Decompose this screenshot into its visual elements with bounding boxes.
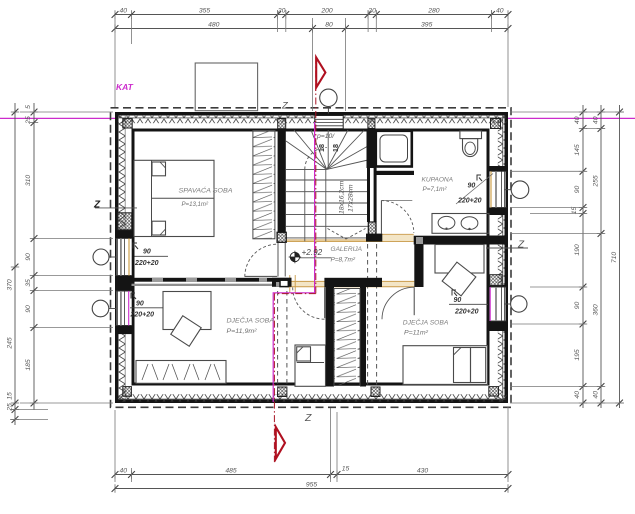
svg-text:18: 18 xyxy=(331,144,340,152)
svg-text:220+20: 220+20 xyxy=(134,260,159,267)
svg-text:190: 190 xyxy=(574,244,581,256)
svg-text:25: 25 xyxy=(7,403,14,412)
svg-text:40: 40 xyxy=(574,391,581,399)
svg-text:40: 40 xyxy=(593,391,600,399)
svg-text:Z: Z xyxy=(517,239,525,250)
svg-text:18: 18 xyxy=(317,144,326,152)
svg-text:370: 370 xyxy=(7,279,14,291)
svg-text:220+20: 220+20 xyxy=(457,197,482,204)
svg-text:20: 20 xyxy=(277,8,286,15)
svg-text:145: 145 xyxy=(574,144,581,156)
svg-text:80: 80 xyxy=(325,22,333,29)
svg-text:DJEČJA SOBA: DJEČJA SOBA xyxy=(227,316,275,325)
svg-text:35: 35 xyxy=(25,279,32,287)
svg-text:90: 90 xyxy=(468,182,476,189)
svg-text:Z: Z xyxy=(304,412,312,424)
svg-text:DJEČJA SOBA: DJEČJA SOBA xyxy=(403,318,449,327)
svg-text:355: 355 xyxy=(199,8,211,15)
svg-text:15: 15 xyxy=(7,392,14,400)
svg-text:40: 40 xyxy=(120,468,128,475)
svg-text:17x28cm: 17x28cm xyxy=(348,184,355,212)
svg-text:KUPAONA: KUPAONA xyxy=(422,176,454,183)
svg-text:90: 90 xyxy=(25,305,32,313)
svg-text:5: 5 xyxy=(25,105,32,109)
svg-text:220+20: 220+20 xyxy=(454,308,479,315)
svg-text:245: 245 xyxy=(7,337,14,350)
svg-text:255: 255 xyxy=(593,175,600,188)
svg-text:710: 710 xyxy=(611,252,618,264)
svg-text:90: 90 xyxy=(143,249,151,256)
svg-text:p=10/: p=10/ xyxy=(316,133,335,140)
svg-text:25: 25 xyxy=(25,116,32,125)
svg-text:955: 955 xyxy=(306,482,318,489)
svg-text:40: 40 xyxy=(120,8,128,15)
svg-text:185: 185 xyxy=(25,359,32,371)
svg-text:Z: Z xyxy=(281,101,289,112)
svg-text:360: 360 xyxy=(593,304,600,316)
svg-text:90: 90 xyxy=(136,300,144,307)
svg-text:90: 90 xyxy=(574,186,581,194)
svg-text:485: 485 xyxy=(225,468,237,475)
svg-text:40: 40 xyxy=(574,116,581,124)
svg-text:20: 20 xyxy=(367,8,376,15)
svg-text:P=11m²: P=11m² xyxy=(404,329,429,336)
svg-text:15: 15 xyxy=(342,466,350,473)
svg-text:90: 90 xyxy=(25,253,32,261)
svg-text:430: 430 xyxy=(417,468,429,475)
svg-text:480: 480 xyxy=(208,22,220,29)
svg-text:280: 280 xyxy=(427,8,440,15)
svg-text:SPAVAĆA SOBA: SPAVAĆA SOBA xyxy=(179,186,234,195)
svg-text:P=7,1m²: P=7,1m² xyxy=(423,186,448,193)
svg-text:+2.92: +2.92 xyxy=(302,248,323,257)
svg-text:P=13,1m²: P=13,1m² xyxy=(182,201,209,208)
svg-text:90: 90 xyxy=(574,302,581,310)
svg-text:40: 40 xyxy=(593,116,600,124)
svg-text:Z: Z xyxy=(93,200,101,211)
svg-text:P=11,9m²: P=11,9m² xyxy=(227,328,258,335)
svg-text:KAT: KAT xyxy=(116,82,134,92)
svg-text:GALERIJA: GALERIJA xyxy=(331,246,363,253)
svg-text:90: 90 xyxy=(454,297,462,304)
svg-text:220+20: 220+20 xyxy=(130,311,155,318)
svg-text:195: 195 xyxy=(574,349,581,361)
svg-text:40: 40 xyxy=(496,8,504,15)
svg-text:200: 200 xyxy=(320,8,333,15)
svg-text:18x16,2cm: 18x16,2cm xyxy=(339,180,346,214)
svg-text:310: 310 xyxy=(25,175,32,187)
svg-text:P=8,7m²: P=8,7m² xyxy=(331,256,356,263)
svg-text:395: 395 xyxy=(421,22,433,29)
